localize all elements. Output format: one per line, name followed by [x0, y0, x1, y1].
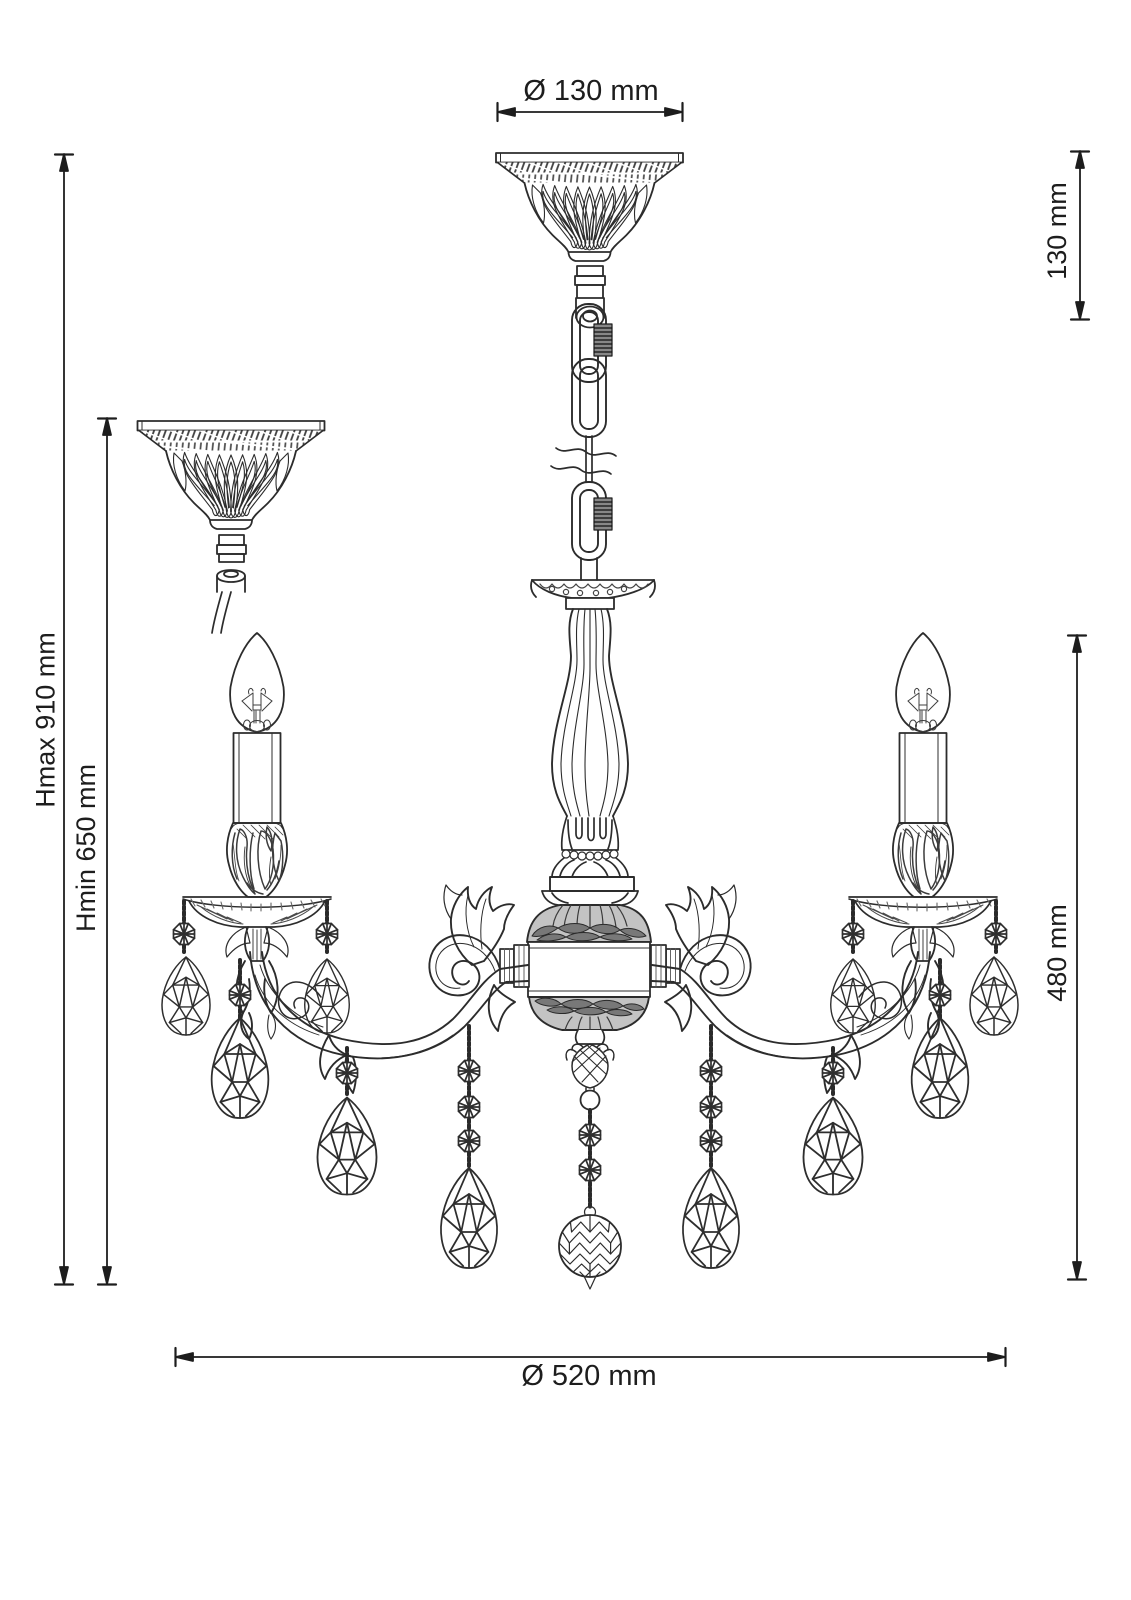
- svg-text:480 mm: 480 mm: [1042, 904, 1072, 1002]
- svg-text:Ø 130 mm: Ø 130 mm: [523, 75, 658, 107]
- svg-text:130 mm: 130 mm: [1042, 182, 1072, 280]
- svg-text:Ø 520 mm: Ø 520 mm: [521, 1360, 656, 1392]
- svg-text:Hmax 910 mm: Hmax 910 mm: [31, 632, 61, 808]
- svg-text:Hmin 650 mm: Hmin 650 mm: [71, 764, 101, 932]
